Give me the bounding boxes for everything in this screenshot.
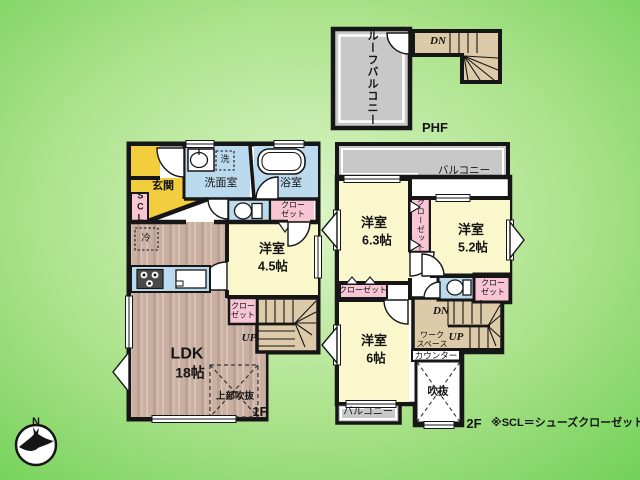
f2-toilet-icon (447, 280, 471, 295)
balcony-bottom-label: バルコニー (343, 408, 393, 419)
ldk-name-label: LDK (171, 345, 204, 362)
fridge-label: 冷 (141, 234, 151, 244)
roof-balcony-label: ルーフバルコニー (365, 30, 377, 126)
room63-size-label: 6.3帖 (362, 234, 392, 248)
room6-name-label: 洋室 (361, 334, 387, 348)
kitchen-sink-icon (176, 270, 206, 288)
room63-name-label: 洋室 (361, 216, 387, 230)
room52-size-label: 5.2帖 (458, 241, 488, 255)
void-label: 吹抜 (428, 386, 449, 397)
closet-left-label: クローゼット (339, 287, 387, 296)
washer-label: 洗 (220, 155, 229, 165)
closet-right-label: クローゼット (481, 279, 505, 296)
floorplan-image: ルーフバルコニー DN PHF 玄関 SCL 洗面室 洗 浴室 クローゼット 洋… (0, 0, 640, 480)
sink-icon (188, 149, 214, 171)
washroom-label: 洗面室 (205, 178, 238, 190)
closet-vertical-label: クローゼット (416, 198, 425, 252)
f1-up-label: UP (242, 333, 257, 345)
closet-b-label: クローゼット (231, 302, 255, 319)
bathtub-icon (258, 149, 305, 174)
f2-dn-label: DN (433, 306, 449, 318)
room45-size-label: 4.5帖 (258, 260, 288, 274)
f2-room-6-3 (339, 181, 409, 281)
compass-north-label: N (32, 417, 40, 429)
workspace-label: ワークスペース (416, 331, 447, 348)
room45-name-label: 洋室 (259, 242, 285, 256)
ldk-size-label: 18帖 (175, 365, 205, 380)
room52-name-label: 洋室 (458, 223, 484, 237)
balcony-top-label: バルコニー (438, 165, 490, 176)
floorplan-drawing (0, 0, 640, 480)
kitchen-counter (131, 266, 210, 292)
bathroom-label: 浴室 (280, 178, 302, 190)
counter-label: カウンター (415, 351, 458, 360)
phf-dn-label: DN (430, 36, 446, 48)
scl-label: SCL (135, 191, 145, 224)
genkan-label: 玄関 (152, 181, 174, 193)
upper-void-label: 上部吹抜 (216, 392, 254, 402)
phf-floor-label: PHF (422, 121, 448, 135)
toilet-icon (235, 203, 263, 219)
f1-floor-label: 1F (252, 405, 267, 419)
f2-floor-label: 2F (466, 417, 481, 431)
stove-icon (137, 270, 163, 289)
room6-size-label: 6帖 (366, 352, 385, 366)
f2-up-label: UP (449, 332, 464, 344)
scl-note: ※SCL＝シューズクローゼット (491, 418, 640, 430)
f1-porch (131, 146, 160, 178)
closet-a-label: クローゼット (281, 201, 305, 218)
compass-icon (16, 425, 56, 465)
